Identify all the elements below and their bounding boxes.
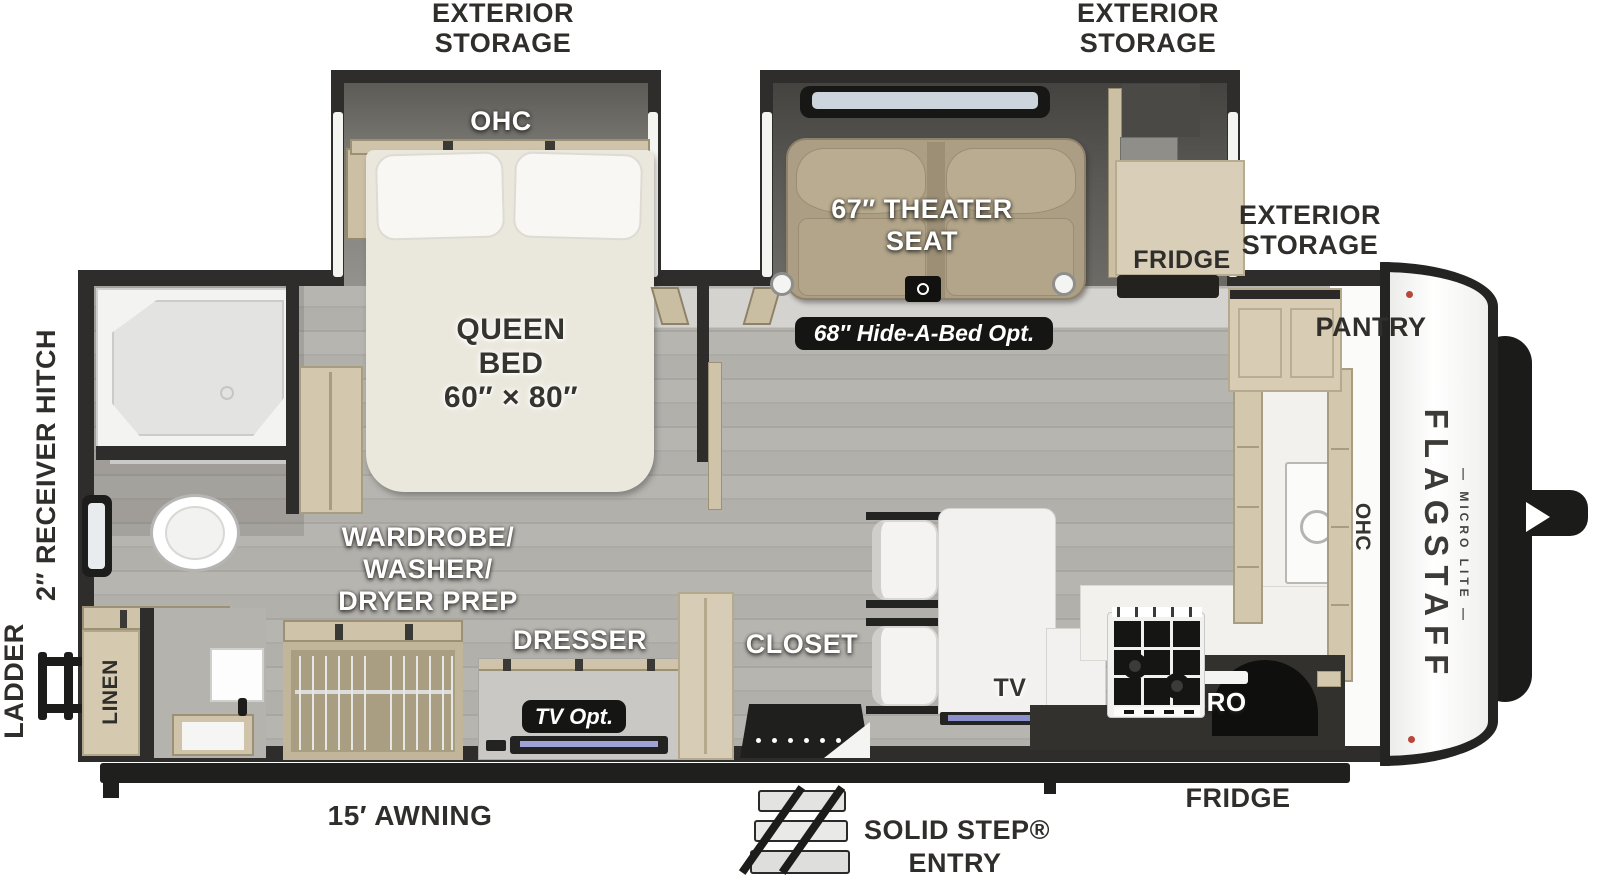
shower <box>96 288 298 448</box>
awning-label: 15′ AWNING <box>328 801 493 831</box>
micro-side-shelf <box>1317 671 1341 687</box>
vanity-sink <box>172 714 254 756</box>
dinette-chair-1 <box>866 512 944 608</box>
bedroom-tv-backer <box>708 362 722 510</box>
pillow-right <box>513 151 643 240</box>
shower-ledge <box>96 446 298 460</box>
ladder-label: LADDER <box>0 623 29 739</box>
fridge-interior <box>1120 137 1178 161</box>
table-tv-label: TV <box>994 673 1027 703</box>
hide-a-bed-badge: 68″ Hide-A-Bed Opt. <box>795 317 1053 350</box>
awning-end-bracket <box>103 783 119 798</box>
fridge-slide-label: FRIDGE <box>1133 245 1230 275</box>
hitch-coupler <box>1500 490 1588 536</box>
theater-seat-label-1: 67″ THEATER <box>831 194 1012 224</box>
brand-tagline: — MICRO LITE — <box>1449 468 1479 624</box>
bed-wardrobe-cabinet <box>299 366 363 514</box>
queen-bed-label-3: 60″ × 80″ <box>444 383 578 413</box>
tv-opt-badge: TV Opt. <box>522 700 626 733</box>
wardrobe-label-1: WARDROBE/ <box>342 522 515 552</box>
cap-marker-light-top <box>1406 291 1413 298</box>
fridge-vent <box>1117 275 1219 298</box>
queen-bed-label-1: QUEEN <box>456 315 565 345</box>
entry-label-1: SOLID STEP® <box>864 815 1050 845</box>
vanity-faucet <box>238 698 247 716</box>
cupholder-left <box>770 272 794 296</box>
theater-window <box>800 86 1050 118</box>
solid-step <box>750 784 854 880</box>
fridge-cabinet-top <box>1122 84 1200 137</box>
bedroom-slide-window-left <box>333 112 343 277</box>
wardrobe-label-2: WASHER/ <box>363 554 493 584</box>
exterior-storage-front: EXTERIOR STORAGE <box>1239 200 1381 260</box>
theater-console-button <box>905 276 941 302</box>
entry-label-2: ENTRY <box>908 848 1001 878</box>
floorplan: LADDER 2″ RECEIVER HITCH 15′ AWNING OHC … <box>0 0 1600 881</box>
kitchen-drawer-strip <box>1233 388 1263 624</box>
wardrobe-label-3: DRYER PREP <box>338 586 518 616</box>
wardrobe-cabinet-top <box>283 620 463 642</box>
exterior-storage-top-left: EXTERIOR STORAGE <box>432 0 574 58</box>
ohc-bedroom-label: OHC <box>470 106 532 136</box>
theater-slide-window-left <box>762 112 772 277</box>
theater-seat-label-2: SEAT <box>886 226 958 256</box>
closet-label: CLOSET <box>746 629 859 659</box>
receiver-hitch-label: 2″ RECEIVER HITCH <box>31 329 61 601</box>
vanity-mirror <box>210 648 264 702</box>
linen-divider <box>140 608 154 758</box>
dinette-chair-2 <box>866 618 944 714</box>
cap-marker-light-bottom <box>1408 736 1415 743</box>
awning-latch <box>1044 766 1056 794</box>
pantry-label: PANTRY <box>1316 312 1427 342</box>
range-stove <box>1107 612 1205 718</box>
brand-logo: FLAGSTAFF <box>1421 409 1451 684</box>
cupholder-right <box>1052 272 1076 296</box>
fridge-bottom-label: FRIDGE <box>1185 783 1290 813</box>
bathroom-window <box>82 495 112 577</box>
toilet <box>150 494 240 572</box>
shower-rail <box>110 460 298 464</box>
exterior-storage-top-right: EXTERIOR STORAGE <box>1077 0 1219 58</box>
queen-bed-label-2: BED <box>479 349 544 379</box>
pillow-left <box>375 151 505 240</box>
bath-bed-divider-wall <box>286 286 299 514</box>
dresser-label: DRESSER <box>513 625 647 655</box>
dresser-soundbar <box>486 740 506 751</box>
closet-cabinet <box>678 592 734 760</box>
linen-label: LINEN <box>96 659 126 725</box>
awning-bar <box>100 763 1350 783</box>
dresser-tv <box>510 736 668 754</box>
wardrobe-cabinet <box>283 642 463 760</box>
ohc-kitchen-label: OHC <box>1347 503 1377 551</box>
